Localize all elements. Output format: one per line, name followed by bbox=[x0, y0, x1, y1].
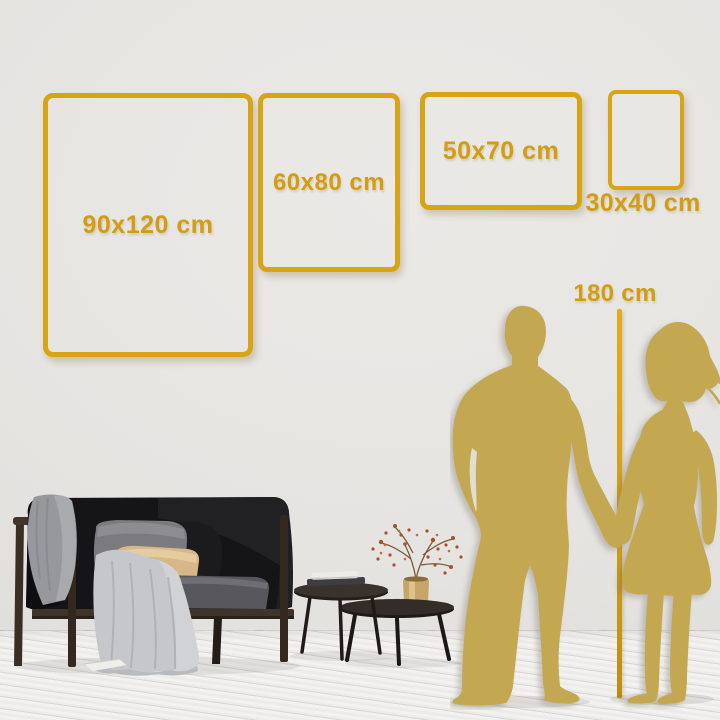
size-frame-90x120: 90x120 cm bbox=[43, 93, 253, 357]
size-frame-50x70: 50x70 cm bbox=[420, 92, 582, 210]
man-silhouette bbox=[453, 306, 623, 705]
wall-art-size-guide: 90x120 cm 60x80 cm 50x70 cm 30x40 cm 180… bbox=[0, 0, 720, 720]
size-label-90x120: 90x120 cm bbox=[82, 211, 213, 240]
size-frame-60x80: 60x80 cm bbox=[258, 93, 400, 272]
blossoms bbox=[371, 524, 462, 575]
coffee-tables-illustration bbox=[285, 515, 465, 670]
size-label-30x40: 30x40 cm bbox=[578, 189, 708, 218]
size-frame-30x40 bbox=[608, 90, 684, 190]
couple-silhouette bbox=[450, 298, 720, 710]
books-stack bbox=[307, 571, 365, 586]
size-label-60x80: 60x80 cm bbox=[273, 169, 385, 197]
size-label-50x70: 50x70 cm bbox=[443, 137, 560, 166]
sofa-illustration bbox=[8, 487, 308, 677]
woman-silhouette bbox=[615, 322, 720, 704]
